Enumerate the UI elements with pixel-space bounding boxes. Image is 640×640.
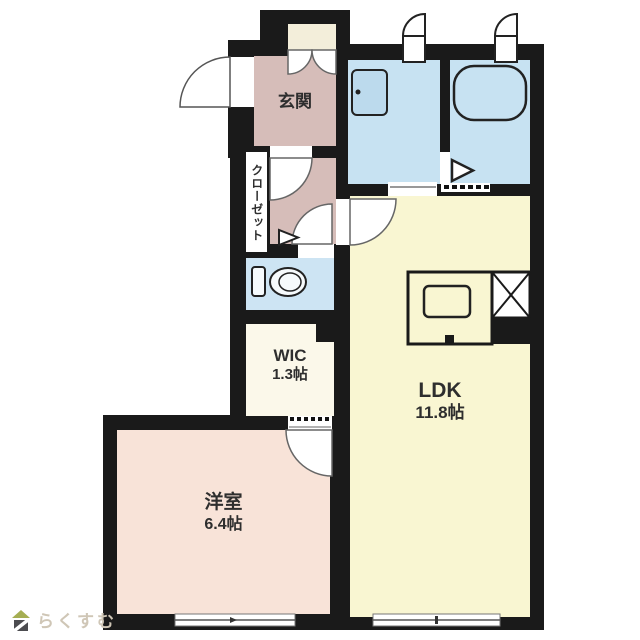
entrance-door-arc-icon	[180, 57, 230, 107]
room-toilet	[246, 258, 334, 310]
western-name: 洋室	[204, 492, 242, 513]
wall-wic-notch	[316, 324, 334, 342]
western-size: 6.4帖	[117, 515, 330, 534]
ldk-label: LDK 11.8帖	[350, 378, 530, 424]
room-hallway	[270, 158, 336, 244]
vent-window-arc-icon	[495, 14, 517, 36]
site-logo: らくすむ	[10, 607, 117, 632]
closet-label: クローゼット	[246, 155, 267, 250]
ldk-size: 11.8帖	[350, 403, 530, 423]
house-logo-icon	[10, 608, 32, 632]
vent-window-arc-icon	[403, 14, 425, 36]
hall-ldk-opening	[336, 199, 350, 245]
genkan-label: 玄関	[254, 92, 336, 112]
entrance-door-opening	[228, 57, 254, 107]
room-bathroom	[450, 60, 530, 184]
wic-name: WIC	[273, 346, 306, 365]
ldk-name: LDK	[418, 379, 461, 402]
floorplan: 玄関 クローゼット WIC 1.3帖 LDK 11.8帖 洋室 6.4帖 らくす…	[0, 0, 640, 640]
genkan-hall-opening	[270, 146, 312, 158]
toilet-door-opening	[298, 244, 334, 258]
wic-label: WIC 1.3帖	[246, 346, 334, 384]
room-washroom	[348, 60, 440, 184]
bathroom-door-opening	[440, 152, 450, 184]
western-label: 洋室 6.4帖	[117, 492, 330, 534]
wic-size: 1.3帖	[246, 366, 334, 384]
logo-text: らくすむ	[37, 607, 117, 632]
